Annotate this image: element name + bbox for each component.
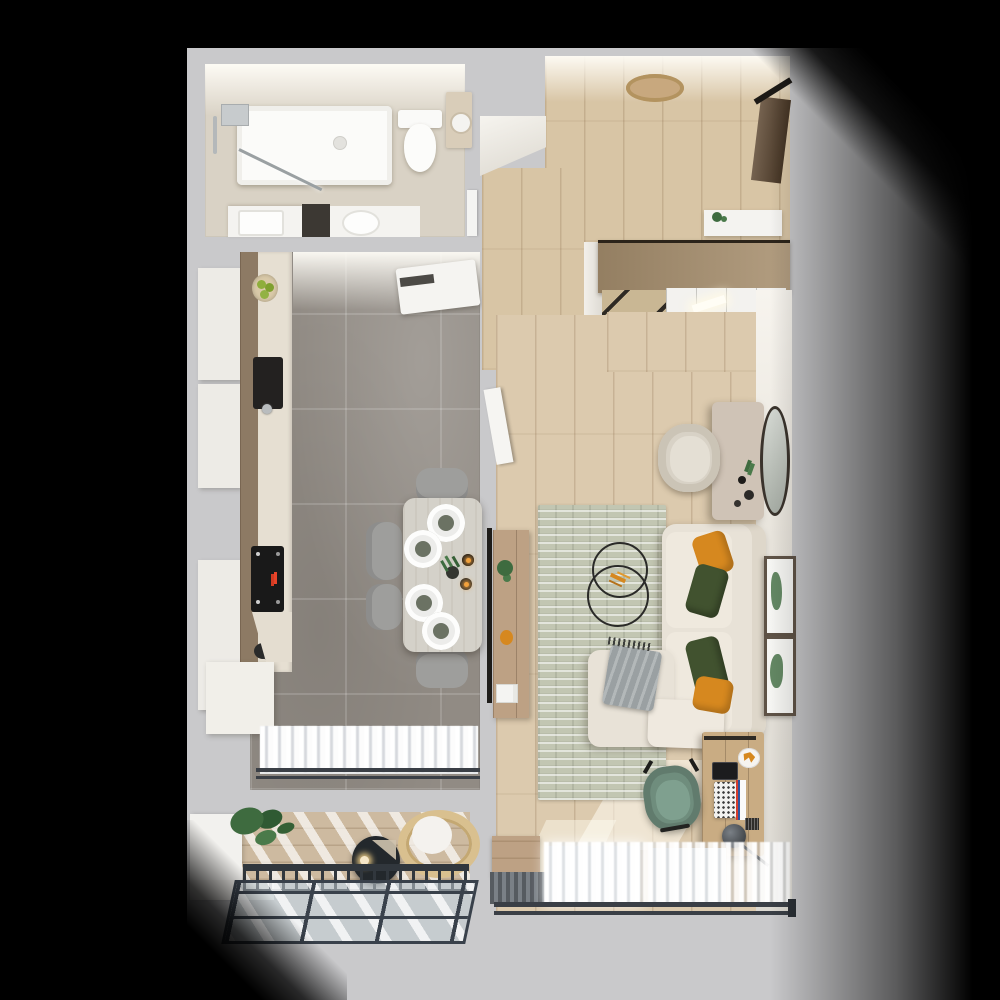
- shower-hose: [213, 116, 217, 154]
- pillow-orange-2: [691, 675, 734, 715]
- sink-left: [238, 210, 284, 236]
- console-decor-orange: [500, 630, 513, 645]
- dressing-item-3: [734, 500, 741, 507]
- shower-fixture: [221, 104, 249, 126]
- plate-2: [404, 530, 442, 568]
- room-bathroom: [205, 64, 465, 237]
- dressing-item-1: [738, 476, 746, 484]
- vanity-chair-seat: [670, 436, 710, 482]
- rod-end-cap-2: [788, 909, 796, 917]
- dining-chair-left-1: [366, 522, 402, 580]
- rod-end-cap-1: [788, 899, 796, 909]
- towel-ring: [450, 112, 472, 134]
- bathtub-drain: [333, 136, 347, 150]
- table-vase: [446, 566, 459, 579]
- desk-item-dark: [745, 818, 759, 830]
- kitchen-upper-cabinet-1: [198, 268, 240, 380]
- console-books: [496, 684, 518, 703]
- kitchen-upper-cabinet-2: [198, 384, 240, 488]
- living-floor-top: [607, 312, 757, 372]
- kitchen-curtain-rod-2: [256, 776, 480, 779]
- doormat: [626, 74, 684, 102]
- sink-right: [342, 210, 380, 236]
- tablet: [712, 762, 738, 780]
- living-low-cabinet: [492, 836, 540, 876]
- dressing-item-2: [744, 490, 754, 500]
- bathtub: [237, 106, 392, 185]
- fruit-apples: [257, 280, 266, 289]
- candle-flame-1: [466, 558, 471, 563]
- desk-decor-orange: [738, 748, 760, 768]
- dining-chair-bottom: [416, 648, 468, 688]
- cooktop: [251, 546, 284, 612]
- frame-2-art: [770, 654, 783, 688]
- balcony-glass-roof: [221, 880, 479, 944]
- floorplan-render: [0, 0, 1000, 1000]
- chandelier-ring-2: [587, 565, 649, 627]
- desk-drawer-line: [704, 736, 756, 740]
- vignette-left: [0, 0, 187, 1000]
- window-blinds-dark: [490, 872, 546, 904]
- kitchen-window-curtains: [260, 726, 478, 772]
- balcony-railing: [243, 864, 469, 871]
- living-curtains: [544, 842, 790, 904]
- kitchen-peninsula: [206, 662, 274, 734]
- vignette-right: [770, 40, 1000, 1000]
- laptop-keyboard: [714, 782, 736, 818]
- corridor-wall-wedge: [480, 116, 546, 176]
- candle-flame-2: [464, 582, 469, 587]
- bathroom-door: [467, 190, 477, 236]
- wardrobe: [598, 240, 790, 293]
- washing-machine-niche: [302, 204, 330, 237]
- kitchen-sink: [253, 357, 283, 409]
- plate-4: [422, 612, 460, 650]
- toilet: [404, 124, 436, 172]
- kitchen-curtain-rod: [256, 768, 480, 772]
- balcony-chair-cushion: [412, 816, 452, 854]
- fruit-bowl: [252, 274, 278, 302]
- kitchen-faucet: [262, 404, 272, 414]
- living-curtain-rod: [494, 902, 792, 907]
- tv-strip: [487, 528, 492, 703]
- throw-blanket: [602, 644, 663, 711]
- frame-1-art: [771, 572, 782, 610]
- console-plant: [497, 560, 513, 576]
- living-curtain-rod-2: [494, 911, 792, 915]
- dining-chair-left-2: [366, 584, 402, 630]
- hall-plant: [712, 212, 722, 222]
- wall-mirror: [760, 406, 790, 516]
- cooktop-controls: [256, 552, 260, 556]
- cooktop-display: [274, 572, 277, 584]
- vignette-top: [0, 0, 1000, 48]
- laptop-screen: [736, 780, 746, 820]
- fridge: [395, 259, 480, 314]
